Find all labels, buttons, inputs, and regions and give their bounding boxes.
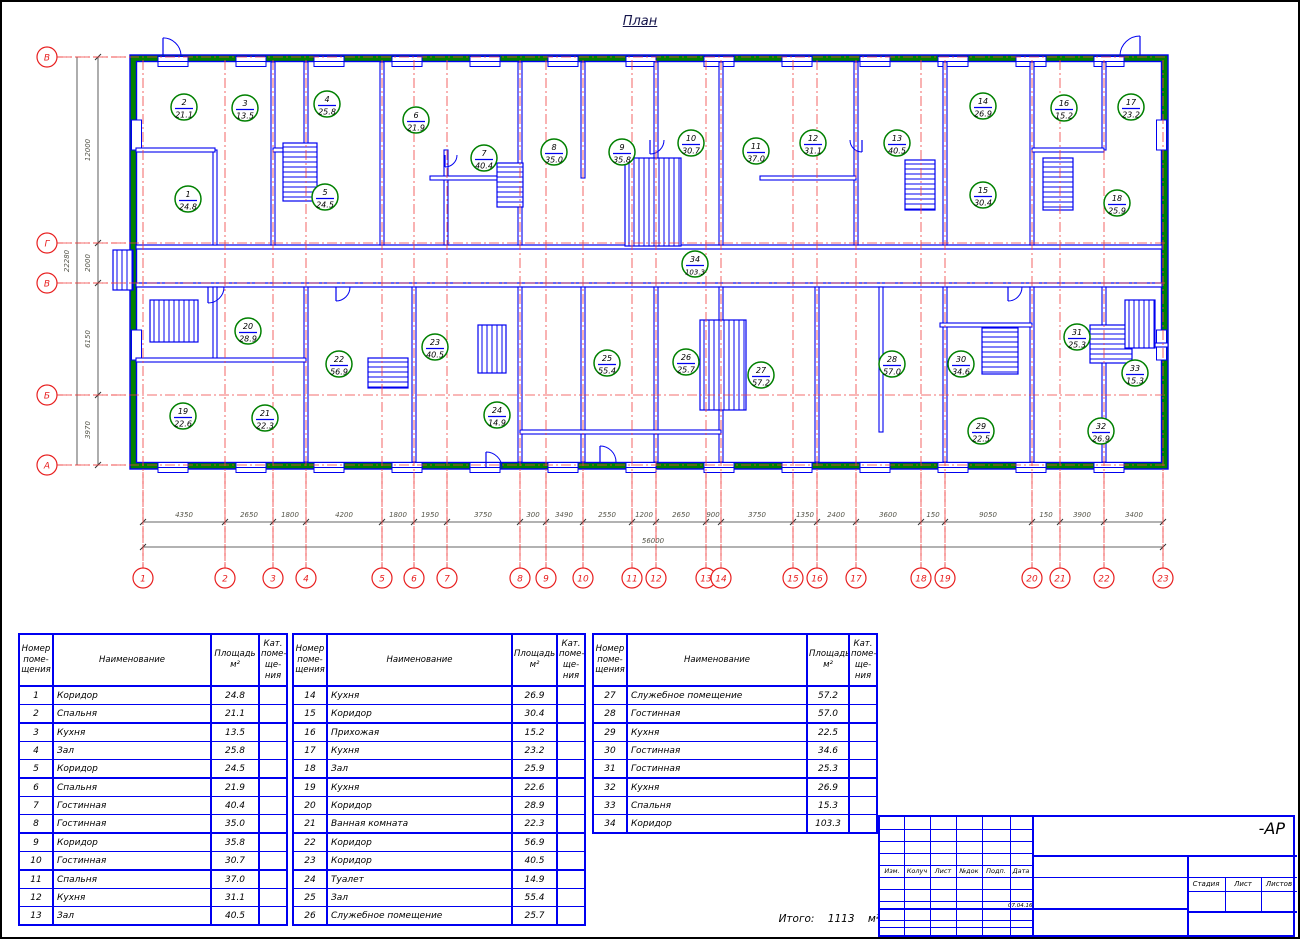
dim-label: 1950	[421, 511, 439, 519]
room-number: 23	[430, 338, 440, 347]
title-block: -АР 07.04.16 Изм.КолучЛист№докПодп.ДатаС…	[878, 815, 1295, 937]
table-cell: 31	[593, 760, 627, 779]
partition-wall	[213, 287, 217, 360]
table-cell: Гостинная	[53, 815, 211, 834]
table-cell: Гостинная	[627, 742, 807, 760]
room-area: 57.2	[752, 379, 770, 388]
room-number: 5	[322, 188, 327, 197]
table-row: 13Зал40.5	[19, 907, 287, 926]
room-number: 34	[690, 255, 700, 264]
table-cell: 13	[19, 907, 53, 926]
dim-label: 3750	[474, 511, 492, 519]
table-cell	[259, 742, 287, 760]
room-area: 30.7	[682, 147, 701, 156]
room-area: 21.9	[407, 124, 425, 133]
room-number: 26	[681, 353, 691, 362]
table-cell: 24.8	[211, 686, 259, 705]
table-cell: Кухня	[327, 778, 512, 797]
room-area: 13.5	[236, 112, 254, 121]
axis-bubble-label: А	[43, 462, 50, 472]
table-cell: 35.0	[211, 815, 259, 834]
table-cell: 20	[293, 797, 327, 815]
dim-label: 12000	[84, 138, 92, 161]
table-cell	[259, 870, 287, 889]
room-number: 12	[808, 134, 818, 143]
table-cell: 30.4	[512, 705, 557, 724]
table-cell: 26	[293, 907, 327, 926]
table-cell: 1	[19, 686, 53, 705]
table-cell: 23	[293, 852, 327, 871]
axis-bubble-label: В	[44, 54, 50, 64]
room-number: 9	[619, 143, 624, 152]
table-row: 10Гостинная30.7	[19, 852, 287, 871]
axis-bubble-label: 19	[939, 575, 951, 585]
room-number: 1	[185, 190, 190, 199]
room-number: 33	[1130, 364, 1140, 373]
outer-wall-inner	[137, 62, 1162, 463]
table-cell: 15.2	[512, 723, 557, 742]
partition-wall	[213, 150, 217, 245]
table-cell: Коридор	[327, 705, 512, 724]
table-cell	[557, 889, 585, 907]
table-cell: 57.0	[807, 705, 849, 724]
table-header-cell: Номер поме- щения	[19, 634, 53, 686]
dim-label: 900	[706, 511, 720, 519]
table-cell: Зал	[327, 760, 512, 779]
table-cell: Ванная комната	[327, 815, 512, 834]
dim-label: 3970	[84, 421, 92, 439]
table-cell: 26.9	[512, 686, 557, 705]
table-cell: 22.5	[807, 723, 849, 742]
table-cell: 25.3	[807, 760, 849, 779]
stamp-header-cell: Дата	[1010, 865, 1032, 877]
table-row: 29Кухня22.5	[593, 723, 877, 742]
table-cell: Кухня	[53, 889, 211, 907]
table-cell: 25.7	[512, 907, 557, 926]
room-area: 15.2	[1055, 112, 1073, 121]
table-cell: Кухня	[627, 723, 807, 742]
table-cell: 14.9	[512, 870, 557, 889]
table-cell: 32	[593, 778, 627, 797]
axis-bubble-label: 8	[517, 575, 523, 585]
partition-wall	[940, 323, 1032, 327]
table-cell: 21.9	[211, 778, 259, 797]
table-cell	[849, 723, 877, 742]
room-number: 11	[751, 142, 761, 151]
table-cell: Кухня	[627, 778, 807, 797]
table-cell: 22.6	[512, 778, 557, 797]
stamp-right-header-cell: Стадия	[1187, 877, 1225, 891]
total-area-line: Итого: 1113 м²	[690, 913, 880, 925]
axis-bubble-label: 20	[1026, 575, 1038, 585]
table-cell	[849, 815, 877, 834]
room-area: 37.0	[747, 155, 765, 164]
room-area: 40.4	[475, 162, 493, 171]
table-cell	[849, 760, 877, 779]
room-area: 22.6	[174, 420, 192, 429]
stamp-header-cell: Подп.	[982, 865, 1010, 877]
table-cell: Зал	[53, 742, 211, 760]
axis-bubble-label: Б	[44, 392, 50, 402]
partition-wall	[1032, 148, 1104, 152]
stamp-header-cell: №док	[956, 865, 982, 877]
table-cell	[849, 705, 877, 724]
table-cell	[557, 797, 585, 815]
table-cell: Служебное помещение	[327, 907, 512, 926]
table-cell: 34	[593, 815, 627, 834]
table-cell: 25	[293, 889, 327, 907]
room-area: 21.1	[175, 111, 193, 120]
table-header-cell: Наименование	[53, 634, 211, 686]
table-cell	[259, 889, 287, 907]
table-header-row: Номер поме- щенияНаименованиеПлощадь м²К…	[293, 634, 585, 686]
room-area: 22.3	[256, 422, 274, 431]
axis-bubble-label: 1	[140, 575, 146, 585]
total-value: 1113	[828, 913, 855, 925]
table-cell: 8	[19, 815, 53, 834]
table-cell: Туалет	[327, 870, 512, 889]
table-row: 24Туалет14.9	[293, 870, 585, 889]
axis-bubble-label: 21	[1054, 575, 1065, 585]
table-cell: Гостинная	[627, 705, 807, 724]
dim-label: 1200	[635, 511, 653, 519]
dim-label: 6150	[84, 330, 92, 348]
dim-label: 2000	[84, 254, 92, 272]
table-row: 9Коридор35.8	[19, 833, 287, 852]
table-cell: 29	[593, 723, 627, 742]
table-cell	[557, 852, 585, 871]
outer-wall-fill	[133, 58, 1165, 466]
table-cell: Коридор	[53, 686, 211, 705]
table-row: 8Гостинная35.0	[19, 815, 287, 834]
door-arc	[1120, 36, 1140, 55]
room-area: 34.6	[952, 368, 970, 377]
axis-bubble-label: 12	[650, 575, 662, 585]
window	[1157, 120, 1167, 150]
table-row: 25Зал55.4	[293, 889, 585, 907]
stair	[905, 160, 935, 210]
table-cell: 55.4	[512, 889, 557, 907]
door-arc	[600, 446, 616, 462]
axis-bubble-label: 4	[303, 575, 309, 585]
table-cell	[557, 723, 585, 742]
table-cell: Зал	[327, 889, 512, 907]
room-number: 30	[956, 355, 966, 364]
room-number: 14	[978, 97, 988, 106]
table-row: 2Спальня21.1	[19, 705, 287, 724]
table-cell: 7	[19, 797, 53, 815]
table-cell: Служебное помещение	[627, 686, 807, 705]
room-schedule-table-1: Номер поме- щенияНаименованиеПлощадь м²К…	[18, 633, 288, 926]
table-cell	[557, 705, 585, 724]
corridor-wall	[136, 283, 1162, 287]
dim-label: 1800	[389, 511, 407, 519]
table-cell	[557, 778, 585, 797]
table-cell: 34.6	[807, 742, 849, 760]
table-cell	[557, 686, 585, 705]
table-cell: 30	[593, 742, 627, 760]
axis-bubble-label: 9	[543, 575, 549, 585]
table-cell: 28.9	[512, 797, 557, 815]
table-cell	[259, 852, 287, 871]
drawing-sheet: План 43502650180042001800195037503003490…	[0, 0, 1300, 939]
table-row: 19Кухня22.6	[293, 778, 585, 797]
table-header-cell: Номер поме- щения	[593, 634, 627, 686]
dim-label: 150	[926, 511, 940, 519]
dim-label: 3750	[748, 511, 766, 519]
table-cell: 10	[19, 852, 53, 871]
stamp-line	[880, 853, 1032, 854]
room-area: 40.5	[426, 351, 444, 360]
stamp-header-cell: Изм.	[880, 865, 904, 877]
table-cell: Спальня	[53, 705, 211, 724]
table-header-cell: Номер поме- щения	[293, 634, 327, 686]
table-cell: Спальня	[53, 778, 211, 797]
table-row: 15Коридор30.4	[293, 705, 585, 724]
room-number: 16	[1059, 99, 1069, 108]
dim-label: 2550	[598, 511, 616, 519]
room-area: 25.3	[1068, 341, 1086, 350]
table-row: 32Кухня26.9	[593, 778, 877, 797]
room-area: 26.9	[1092, 435, 1110, 444]
axis-bubble-label: 10	[577, 575, 589, 585]
dim-label: 1800	[281, 511, 299, 519]
table-row: 31Гостинная25.3	[593, 760, 877, 779]
room-area: 56.9	[330, 368, 348, 377]
table-cell: Кухня	[53, 723, 211, 742]
table-row: 18Зал25.9	[293, 760, 585, 779]
table-cell: 27	[593, 686, 627, 705]
floor-plan-drawing: 4350265018004200180019503750300349025501…	[0, 0, 1300, 620]
axis-bubble-label: 14	[715, 575, 727, 585]
table-cell: 17	[293, 742, 327, 760]
table-cell: 24	[293, 870, 327, 889]
room-number: 17	[1126, 98, 1137, 107]
table-cell: 5	[19, 760, 53, 779]
room-area: 25.9	[1108, 207, 1126, 216]
table-cell	[557, 815, 585, 834]
table-row: 14Кухня26.9	[293, 686, 585, 705]
table-cell: 22	[293, 833, 327, 852]
room-area: 23.2	[1122, 111, 1140, 120]
stamp-line	[1225, 877, 1226, 913]
table-cell: 9	[19, 833, 53, 852]
table-cell: 16	[293, 723, 327, 742]
table-cell	[849, 742, 877, 760]
table-cell: 30.7	[211, 852, 259, 871]
room-area: 30.4	[974, 199, 992, 208]
room-area: 28.9	[239, 335, 257, 344]
table-cell: 56.9	[512, 833, 557, 852]
dim-label: 4200	[335, 511, 353, 519]
dim-label: 4350	[175, 511, 193, 519]
stamp-line	[880, 927, 1032, 928]
table-header-row: Номер поме- щенияНаименованиеПлощадь м²К…	[593, 634, 877, 686]
table-cell: 25.9	[512, 760, 557, 779]
room-area: 35.0	[545, 156, 563, 165]
stamp-line	[880, 889, 1032, 890]
table-header-cell: Кат. поме- ще- ния	[259, 634, 287, 686]
axis-bubble-label: 22	[1098, 575, 1110, 585]
table-row: 20Коридор28.9	[293, 797, 585, 815]
room-number: 29	[976, 422, 986, 431]
table-cell: 4	[19, 742, 53, 760]
table-cell	[259, 797, 287, 815]
axis-bubble-label: В	[44, 280, 50, 290]
table-row: 4Зал25.8	[19, 742, 287, 760]
partition-wall	[760, 176, 856, 180]
table-cell: 15	[293, 705, 327, 724]
table-cell: 31.1	[211, 889, 259, 907]
axis-bubble-label: 5	[379, 575, 385, 585]
room-number: 22	[334, 355, 344, 364]
dim-label: 3490	[555, 511, 573, 519]
room-area: 14.9	[488, 419, 506, 428]
table-row: 7Гостинная40.4	[19, 797, 287, 815]
table-header-cell: Площадь м²	[807, 634, 849, 686]
room-area: 55.4	[598, 367, 616, 376]
table-row: 30Гостинная34.6	[593, 742, 877, 760]
dim-label: 3400	[1125, 511, 1143, 519]
table-cell	[557, 870, 585, 889]
room-number: 4	[324, 95, 329, 104]
dim-label: 2400	[827, 511, 845, 519]
door-arc	[336, 287, 350, 301]
dim-label: 9050	[979, 511, 997, 519]
stamp-line	[880, 841, 1032, 842]
table-cell: Гостинная	[53, 852, 211, 871]
axis-bubble-label: 15	[787, 575, 799, 585]
room-schedule-table-2: Номер поме- щенияНаименованиеПлощадь м²К…	[292, 633, 586, 926]
stamp-line	[880, 901, 1032, 902]
table-cell	[557, 760, 585, 779]
dim-total-label: 56000	[642, 537, 665, 545]
room-number: 3	[242, 99, 247, 108]
stamp-divider	[1187, 855, 1189, 935]
table-row: 33Спальня15.3	[593, 797, 877, 815]
table-cell: Коридор	[327, 852, 512, 871]
table-row: 16Прихожая15.2	[293, 723, 585, 742]
table-row: 26Служебное помещение25.7	[293, 907, 585, 926]
dim-label: 3600	[879, 511, 897, 519]
stamp-line	[1032, 855, 1297, 857]
table-cell: Спальня	[53, 870, 211, 889]
table-cell: 22.3	[512, 815, 557, 834]
stamp-header-cell: Колуч	[904, 865, 930, 877]
dim-total-label: 22280	[63, 249, 71, 272]
table-cell: 103.3	[807, 815, 849, 834]
room-number: 20	[243, 322, 253, 331]
dim-label: 1350	[796, 511, 814, 519]
table-row: 22Коридор56.9	[293, 833, 585, 852]
dim-label: 2650	[240, 511, 258, 519]
stamp-line	[880, 829, 1032, 830]
table-cell: 21.1	[211, 705, 259, 724]
room-area: 26.9	[974, 110, 992, 119]
room-area: 40.5	[888, 147, 906, 156]
table-cell: 35.8	[211, 833, 259, 852]
table-cell: Коридор	[53, 833, 211, 852]
table-row: 1Коридор24.8	[19, 686, 287, 705]
stamp-divider	[1032, 817, 1034, 935]
table-cell: 15.3	[807, 797, 849, 815]
table-cell: Кухня	[327, 686, 512, 705]
table-cell: Спальня	[627, 797, 807, 815]
table-cell: Кухня	[327, 742, 512, 760]
table-cell: 19	[293, 778, 327, 797]
room-number: 28	[887, 355, 897, 364]
table-cell: Коридор	[327, 797, 512, 815]
stamp-right-header-cell: Лист	[1225, 877, 1261, 891]
table-header-cell: Наименование	[327, 634, 512, 686]
room-number: 32	[1096, 422, 1106, 431]
table-cell: 24.5	[211, 760, 259, 779]
stamp-right-header-cell: Листов	[1261, 877, 1297, 891]
table-cell	[259, 833, 287, 852]
stair	[625, 158, 681, 246]
total-label: Итого:	[779, 913, 815, 925]
window	[132, 120, 142, 150]
room-number: 15	[978, 186, 988, 195]
axis-bubble-label: 3	[270, 575, 276, 585]
table-cell	[849, 797, 877, 815]
table-cell: 3	[19, 723, 53, 742]
table-cell: 14	[293, 686, 327, 705]
room-area: 24.8	[179, 203, 197, 212]
axis-bubble-label: 17	[850, 575, 862, 585]
outer-wall-outline	[130, 55, 1168, 469]
axis-bubble-label: 6	[411, 575, 417, 585]
table-cell: Прихожая	[327, 723, 512, 742]
table-header-cell: Площадь м²	[211, 634, 259, 686]
partition-wall	[520, 430, 721, 434]
room-area: 57.0	[883, 368, 901, 377]
axis-bubble-label: 11	[626, 575, 637, 585]
room-number: 6	[413, 111, 418, 120]
axis-bubble-label: 13	[700, 575, 712, 585]
table-cell: Зал	[53, 907, 211, 926]
window	[132, 330, 142, 360]
room-number: 13	[892, 134, 902, 143]
table-cell: Коридор	[53, 760, 211, 779]
room-number: 18	[1112, 194, 1122, 203]
stamp-line	[1261, 877, 1262, 913]
partition-wall	[136, 358, 306, 362]
dim-label: 2650	[672, 511, 690, 519]
axis-bubble-label: 2	[222, 575, 228, 585]
room-number: 27	[756, 366, 767, 375]
table-cell	[259, 815, 287, 834]
door-arc	[1008, 287, 1022, 301]
room-number: 10	[686, 134, 696, 143]
table-header-cell: Наименование	[627, 634, 807, 686]
room-area: 31.1	[804, 147, 822, 156]
room-number: 2	[181, 98, 186, 107]
room-number: 21	[260, 409, 270, 418]
table-row: 23Коридор40.5	[293, 852, 585, 871]
room-number: 31	[1072, 328, 1082, 337]
table-cell: Гостинная	[53, 797, 211, 815]
stamp-line	[1187, 891, 1297, 892]
stamp-line	[880, 877, 1032, 878]
stamp-line	[880, 920, 1032, 921]
table-row: 11Спальня37.0	[19, 870, 287, 889]
stamp-line	[1187, 911, 1297, 913]
room-schedule-table-3: Номер поме- щенияНаименованиеПлощадь м²К…	[592, 633, 878, 834]
document-code: -АР	[1259, 819, 1285, 838]
room-number: 24	[492, 406, 502, 415]
dim-label: 150	[1039, 511, 1053, 519]
